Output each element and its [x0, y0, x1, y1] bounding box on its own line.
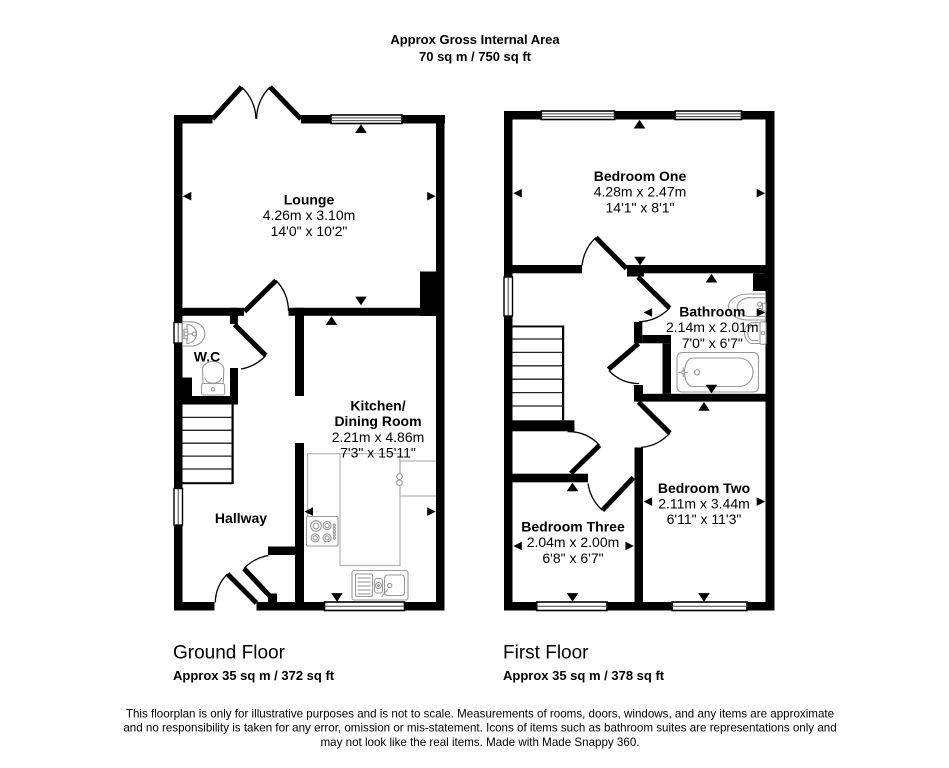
svg-text:2.21m x 4.86m: 2.21m x 4.86m [332, 429, 425, 445]
svg-text:14'1" x 8'1": 14'1" x 8'1" [606, 199, 675, 215]
svg-text:Lounge: Lounge [284, 191, 335, 207]
svg-text:This floorplan is only for ill: This floorplan is only for illustrative … [126, 707, 834, 720]
svg-text:Bathroom: Bathroom [679, 304, 745, 320]
svg-text:6'11" x 11'3": 6'11" x 11'3" [667, 511, 742, 527]
svg-text:2.04m x 2.00m: 2.04m x 2.00m [527, 534, 620, 550]
svg-text:Approx 35 sq m / 378 sq ft: Approx 35 sq m / 378 sq ft [503, 668, 665, 683]
svg-text:Kitchen/: Kitchen/ [350, 397, 405, 413]
svg-text:and no responsibility is taken: and no responsibility is taken for any e… [123, 722, 836, 735]
svg-text:Bedroom Two: Bedroom Two [658, 480, 750, 496]
svg-text:2.11m x 3.44m: 2.11m x 3.44m [658, 496, 750, 512]
svg-text:4.26m x 3.10m: 4.26m x 3.10m [263, 207, 356, 223]
svg-text:Ground Floor: Ground Floor [173, 643, 286, 664]
svg-text:Dining Room: Dining Room [334, 413, 421, 429]
svg-text:Approx Gross Internal Area: Approx Gross Internal Area [390, 32, 560, 47]
svg-text:14'0" x 10'2": 14'0" x 10'2" [271, 223, 348, 239]
svg-text:6'8" x 6'7": 6'8" x 6'7" [542, 550, 603, 566]
svg-text:may not look like the real ite: may not look like the real items. Made w… [321, 736, 640, 749]
svg-text:Hallway: Hallway [215, 510, 267, 526]
svg-text:4.28m x 2.47m: 4.28m x 2.47m [594, 184, 687, 200]
svg-text:First Floor: First Floor [503, 643, 589, 664]
svg-text:7'3" x 15'11": 7'3" x 15'11" [340, 445, 416, 461]
svg-text:Bedroom Three: Bedroom Three [521, 519, 625, 535]
svg-text:Bedroom One: Bedroom One [594, 168, 687, 184]
svg-text:70 sq m / 750 sq ft: 70 sq m / 750 sq ft [419, 49, 532, 64]
svg-text:W.C: W.C [194, 349, 220, 365]
svg-text:2.14m x 2.01m: 2.14m x 2.01m [666, 319, 759, 335]
svg-text:Approx 35 sq m / 372 sq ft: Approx 35 sq m / 372 sq ft [173, 668, 335, 683]
svg-text:7'0" x 6'7": 7'0" x 6'7" [682, 335, 743, 351]
